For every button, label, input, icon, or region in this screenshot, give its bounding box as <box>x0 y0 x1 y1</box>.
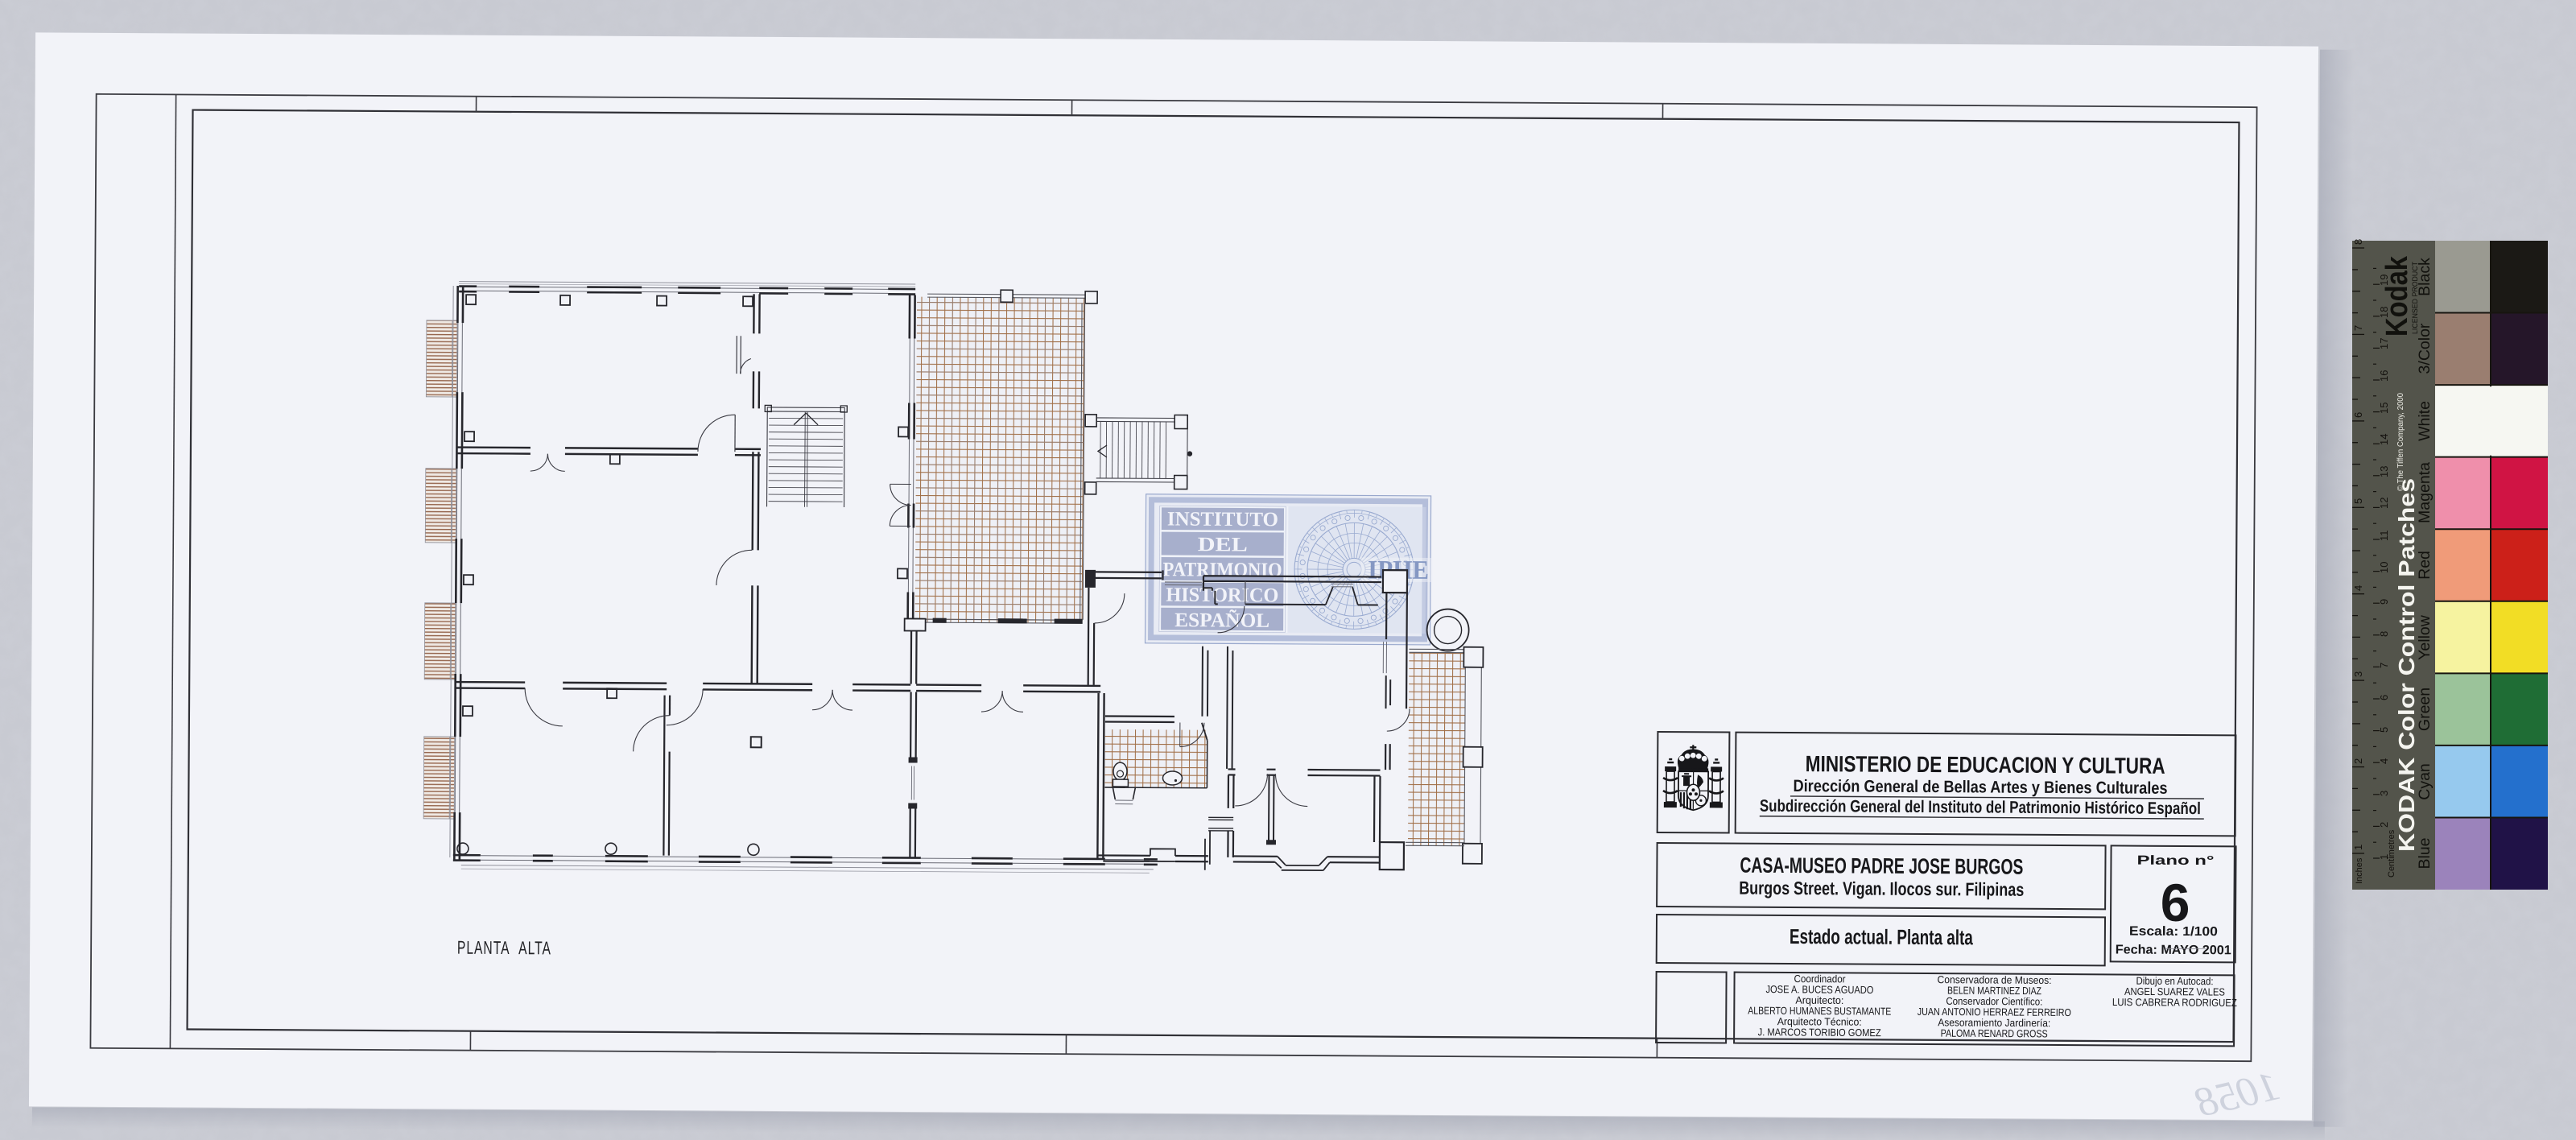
svg-text:KODAK Color Control Patches: KODAK Color Control Patches <box>2394 478 2419 852</box>
svg-text:1: 1 <box>2352 845 2364 850</box>
svg-text:Burgos Street. Vigan. Ilocos s: Burgos Street. Vigan. Ilocos sur. Filipi… <box>1739 878 2024 900</box>
svg-text:3: 3 <box>2378 791 2390 796</box>
svg-text:J. MARCOS TORIBIO GOMEZ: J. MARCOS TORIBIO GOMEZ <box>1758 1026 1881 1039</box>
svg-text:3: 3 <box>2352 671 2364 677</box>
svg-text:4: 4 <box>2378 758 2390 764</box>
svg-text:14: 14 <box>2378 434 2390 445</box>
svg-text:Kodak: Kodak <box>2380 255 2414 337</box>
svg-text:17: 17 <box>2378 338 2390 349</box>
svg-text:4: 4 <box>2352 585 2364 591</box>
svg-text:LICENSED PRODUCT: LICENSED PRODUCT <box>2411 262 2419 334</box>
svg-text:HISTORICO: HISTORICO <box>1166 584 1278 607</box>
svg-text:18: 18 <box>2378 307 2390 318</box>
svg-text:Dirección General de Bellas Ar: Dirección General de Bellas Artes y Bien… <box>1793 777 2167 798</box>
svg-text:5: 5 <box>2352 498 2364 504</box>
svg-text:6: 6 <box>2161 873 2190 932</box>
svg-text:13: 13 <box>2378 466 2390 477</box>
svg-text:7: 7 <box>2352 325 2364 331</box>
svg-text:6: 6 <box>2352 412 2364 418</box>
svg-text:Estado actual. Planta alta: Estado actual. Planta alta <box>1790 924 1974 949</box>
svg-text:White: White <box>2416 401 2434 441</box>
svg-text:© The Tiffen Company, 2000: © The Tiffen Company, 2000 <box>2396 393 2405 491</box>
svg-text:6: 6 <box>2378 695 2390 700</box>
svg-text:7: 7 <box>2378 663 2390 668</box>
svg-text:10: 10 <box>2378 562 2390 573</box>
svg-text:INSTITUTO: INSTITUTO <box>1167 508 1278 531</box>
svg-text:PLANTA ALTA: PLANTA ALTA <box>457 937 551 959</box>
svg-text:DEL: DEL <box>1198 534 1248 556</box>
svg-text:15: 15 <box>2378 403 2390 414</box>
svg-text:2: 2 <box>2352 758 2364 764</box>
svg-text:Inches: Inches <box>2355 857 2364 884</box>
svg-text:12: 12 <box>2378 498 2390 509</box>
svg-text:ESPAÑOL: ESPAÑOL <box>1174 609 1269 632</box>
svg-text:Centimetres: Centimetres <box>2387 829 2396 878</box>
svg-text:PATRIMONIO: PATRIMONIO <box>1162 559 1282 581</box>
svg-text:MINISTERIO DE EDUCACION Y CULT: MINISTERIO DE EDUCACION Y CULTURA <box>1806 751 2165 779</box>
svg-text:19: 19 <box>2378 275 2390 286</box>
svg-text:PALOMA RENARD GROSS: PALOMA RENARD GROSS <box>1941 1027 2048 1040</box>
svg-text:Escala: 1/100: Escala: 1/100 <box>2129 925 2218 940</box>
svg-text:5: 5 <box>2378 727 2390 733</box>
svg-text:8: 8 <box>2352 239 2364 245</box>
svg-text:Plano n°: Plano n° <box>2136 854 2214 869</box>
svg-text:9: 9 <box>2378 599 2390 605</box>
svg-text:LUIS CABRERA RODRIGUEZ: LUIS CABRERA RODRIGUEZ <box>2112 996 2237 1009</box>
svg-text:8: 8 <box>2378 631 2390 637</box>
svg-text:11: 11 <box>2378 531 2390 542</box>
svg-text:CASA-MUSEO PADRE JOSE BURGOS: CASA-MUSEO PADRE JOSE BURGOS <box>1740 853 2023 879</box>
svg-text:2: 2 <box>2378 822 2390 828</box>
svg-text:Subdirección General del Insti: Subdirección General del Instituto del P… <box>1760 797 2201 818</box>
svg-text:16: 16 <box>2378 370 2390 382</box>
svg-text:Fecha: MAYO 2001: Fecha: MAYO 2001 <box>2116 943 2231 957</box>
